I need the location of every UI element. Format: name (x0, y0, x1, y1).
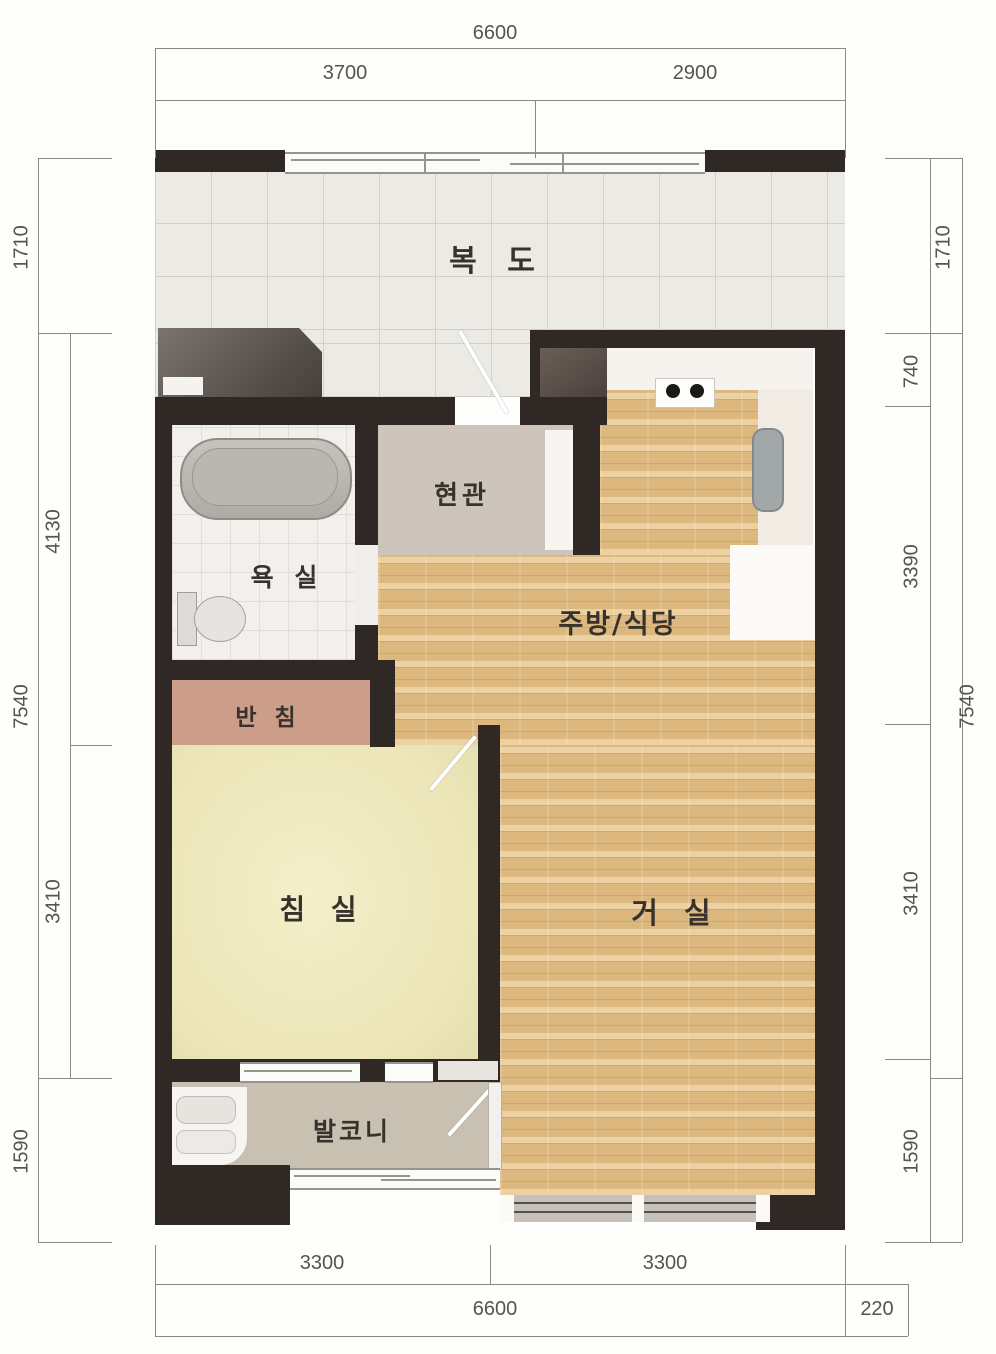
dim-top-right: 2900 (635, 62, 755, 85)
dimension-line (38, 158, 39, 1242)
window-divider (424, 154, 426, 172)
dim-right-1710: 1710 (933, 203, 956, 293)
dimension-tick (885, 1059, 930, 1060)
room-label-balcony: 발코니 (252, 1112, 452, 1148)
dimension-line (930, 158, 931, 1242)
kitchen-floor (600, 390, 760, 555)
floor-plan-page: 복 도 현관 욕 실 주방/식당 반 침 침 실 거 실 발코니 6600 37… (0, 0, 996, 1354)
dim-left-3410: 3410 (43, 857, 66, 947)
washing-machine-panel (176, 1130, 236, 1154)
kitchen-left-wall (530, 348, 540, 410)
dimension-line (155, 48, 156, 158)
balcony-bottom-wall (155, 1165, 290, 1225)
living-window-post-right (756, 1195, 770, 1222)
closet-top-wall (155, 660, 395, 680)
corridor-top-wall-right (705, 150, 845, 172)
living-window-post-mid (632, 1195, 644, 1222)
dim-bottom-overall: 6600 (435, 1298, 555, 1321)
room-label-kitchen-dining: 주방/식당 (498, 602, 738, 641)
washing-machine-lid (176, 1096, 236, 1124)
shoe-cabinet (545, 430, 573, 550)
dimension-line (155, 1245, 156, 1336)
room-label-corridor: 복 도 (397, 236, 597, 280)
dimension-line (155, 1284, 908, 1285)
bedroom-balcony-window (240, 1062, 360, 1083)
window-pane-line (510, 163, 699, 165)
kitchen-sink (752, 428, 784, 512)
dim-bottom-left: 3300 (262, 1252, 382, 1275)
entrance-right-wall (573, 410, 600, 555)
dimension-tick (885, 724, 930, 725)
living-window-post-left (500, 1195, 514, 1222)
dimension-line (490, 1245, 491, 1284)
balcony-bottom-window (290, 1168, 500, 1190)
bathroom-door-opening (355, 545, 378, 625)
shaft-hatch (163, 377, 203, 395)
window-pane-line (244, 1070, 352, 1072)
dimension-tick (70, 745, 112, 746)
left-exterior-wall (155, 397, 172, 1225)
dim-bottom-right: 3300 (605, 1252, 725, 1275)
stove (655, 378, 715, 408)
dim-left-1710: 1710 (11, 203, 34, 293)
stove-burner-left-icon (666, 384, 680, 398)
dimension-tick (38, 158, 112, 159)
closet-right-wall (370, 660, 395, 747)
dimension-tick (885, 333, 962, 334)
dimension-line (70, 333, 71, 1078)
dim-right-7540: 7540 (957, 662, 980, 752)
room-label-bathroom: 욕 실 (227, 558, 347, 594)
dimension-line (845, 1245, 846, 1336)
dimension-tick (885, 1242, 962, 1243)
dim-top-left: 3700 (285, 62, 405, 85)
bedroom-right-wall (478, 725, 500, 1078)
balcony-living-divider (488, 1082, 502, 1170)
toilet-bowl (194, 596, 246, 642)
room-label-living: 거 실 (575, 890, 775, 932)
stove-burner-right-icon (690, 384, 704, 398)
bathroom-right-wall-upper (355, 425, 378, 545)
right-exterior-wall (815, 330, 845, 1230)
dimension-tick (38, 333, 112, 334)
bathroom-right-wall-lower (355, 625, 378, 660)
dim-right-740: 740 (901, 327, 924, 417)
dimension-line (155, 100, 845, 101)
living-room-floor (500, 745, 815, 1195)
dimension-tick (38, 1242, 112, 1243)
dimension-tick (38, 1078, 112, 1079)
dim-right-1590: 1590 (901, 1107, 924, 1197)
bedroom-balcony-window-2 (385, 1062, 433, 1083)
dimension-tick (885, 158, 962, 159)
room-label-entrance: 현관 (402, 475, 522, 512)
window-pane-line (294, 1175, 410, 1177)
window-pane-line (381, 1179, 497, 1181)
dim-left-7540: 7540 (11, 662, 34, 752)
corridor-window (285, 152, 705, 174)
corridor-top-wall-left (155, 150, 285, 172)
room-label-closet: 반 침 (208, 698, 328, 732)
dim-left-4130: 4130 (43, 487, 66, 577)
dimension-tick (930, 1078, 962, 1079)
unit-top-wall-left (155, 397, 455, 425)
window-pane-line (291, 159, 480, 161)
kitchen-top-wall (530, 330, 845, 348)
refrigerator-space (730, 545, 815, 640)
dim-left-1590: 1590 (11, 1107, 34, 1197)
dimension-line (845, 48, 846, 158)
dimension-line (535, 100, 536, 158)
window-divider (562, 154, 564, 172)
dim-right-3410: 3410 (901, 849, 924, 939)
room-label-bedroom: 침 실 (222, 888, 422, 928)
dimension-line (908, 1284, 909, 1336)
dim-bottom-offset: 220 (846, 1298, 908, 1321)
balcony-door-opening (438, 1061, 498, 1080)
dim-right-3390: 3390 (901, 522, 924, 612)
bathtub-inner (192, 448, 338, 506)
dimension-line (155, 1336, 908, 1337)
dim-top-overall: 6600 (435, 22, 555, 45)
dimension-line (155, 48, 845, 49)
